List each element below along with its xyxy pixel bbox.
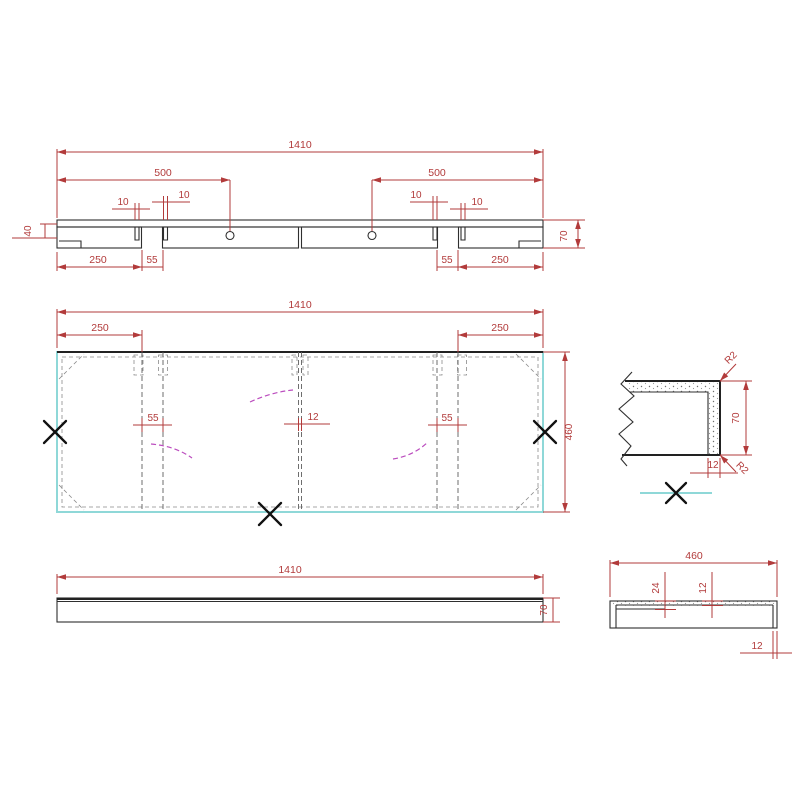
dim-label-plan-left-250: 250 [91,322,109,334]
dim-label-10-b: 10 [178,190,190,201]
plan-slot-hooks [134,355,467,375]
section-segment-4 [459,227,544,248]
plan-view: 1410 250 250 55 12 55 460 [44,299,575,525]
plan-hidden-perimeter [62,357,538,507]
dowel-hole-right [368,232,376,240]
dim-label-10-c: 10 [410,190,422,201]
plan-hidden-joints [142,352,458,512]
dim-label-plan-1410: 1410 [288,299,312,311]
section-segment-3 [302,227,438,248]
dim-label-detail-70: 70 [731,412,742,424]
dim-label-section-70: 70 [559,230,570,242]
x-mark-right [534,421,556,443]
technical-drawing: 1410 500 500 10 10 10 10 250 55 55 [0,0,800,800]
dim-label-radius-bottom: R2 [733,460,750,477]
dim-label-plan-right-250: 250 [491,322,509,334]
elevation-view: 1410 70 [57,564,560,622]
end-inner-lines [616,605,773,628]
section-outline [57,220,543,248]
corner-detail-view: 70 R2 R2 12 [619,350,752,503]
assembly-arc-right [393,442,428,459]
dowel-hole-left [226,232,234,240]
dim-label-left-55: 55 [146,255,158,266]
dim-label-10-d: 10 [471,197,483,208]
dim-label-section-1410: 1410 [288,139,312,151]
dim-label-left-500: 500 [154,167,172,179]
dim-label-end-12: 12 [698,582,709,594]
dim-label-end-lip-12: 12 [751,641,763,652]
slot-d [461,227,465,240]
dim-label-plan-460: 460 [564,423,575,440]
dim-label-plan-left-55: 55 [147,413,159,424]
dim-label-plan-right-55: 55 [441,413,453,424]
dim-label-elev-70: 70 [539,604,550,616]
detail-right-band-fill [708,382,720,455]
dim-label-right-55: 55 [441,255,453,266]
elevation-dimensions: 1410 70 [57,564,560,622]
slot-c [433,227,437,240]
detail-top-band-fill [628,382,708,392]
end-view: 460 24 12 12 [610,550,792,659]
dim-label-plan-12: 12 [307,412,319,423]
dim-label-right-500: 500 [428,167,446,179]
dim-label-end-24: 24 [651,582,662,594]
position-marks [44,421,556,525]
dim-label-height-40: 40 [23,225,34,237]
x-mark-bottom [259,503,281,525]
dim-label-left-250: 250 [89,254,107,266]
detail-inner-lines [630,392,708,455]
dim-label-right-250: 250 [491,254,509,266]
section-segment-1 [57,227,142,248]
dim-label-end-460: 460 [685,550,703,562]
corner-chamfer-lines [59,354,541,510]
section-dimensions: 1410 500 500 10 10 10 10 250 55 55 [12,139,585,271]
slot-a [135,227,139,240]
dim-label-elev-1410: 1410 [278,564,302,576]
x-mark-left [44,421,66,443]
right-end-rebate [519,241,541,248]
slot-b [164,227,168,240]
assembly-arc-left [151,444,192,458]
left-end-rebate [59,241,81,248]
plan-panel-edge [57,352,543,512]
section-top-strip [57,220,543,227]
section-view: 1410 500 500 10 10 10 10 250 55 55 [12,139,585,271]
dim-label-detail-12: 12 [707,460,719,471]
plan-dimensions: 1410 250 250 55 12 55 460 [57,299,575,512]
assembly-arc-center [250,390,293,402]
dim-label-10-a: 10 [117,197,129,208]
dim-label-radius-top: R2 [723,350,740,367]
drawing-canvas: 1410 500 500 10 10 10 10 250 55 55 [0,0,800,800]
